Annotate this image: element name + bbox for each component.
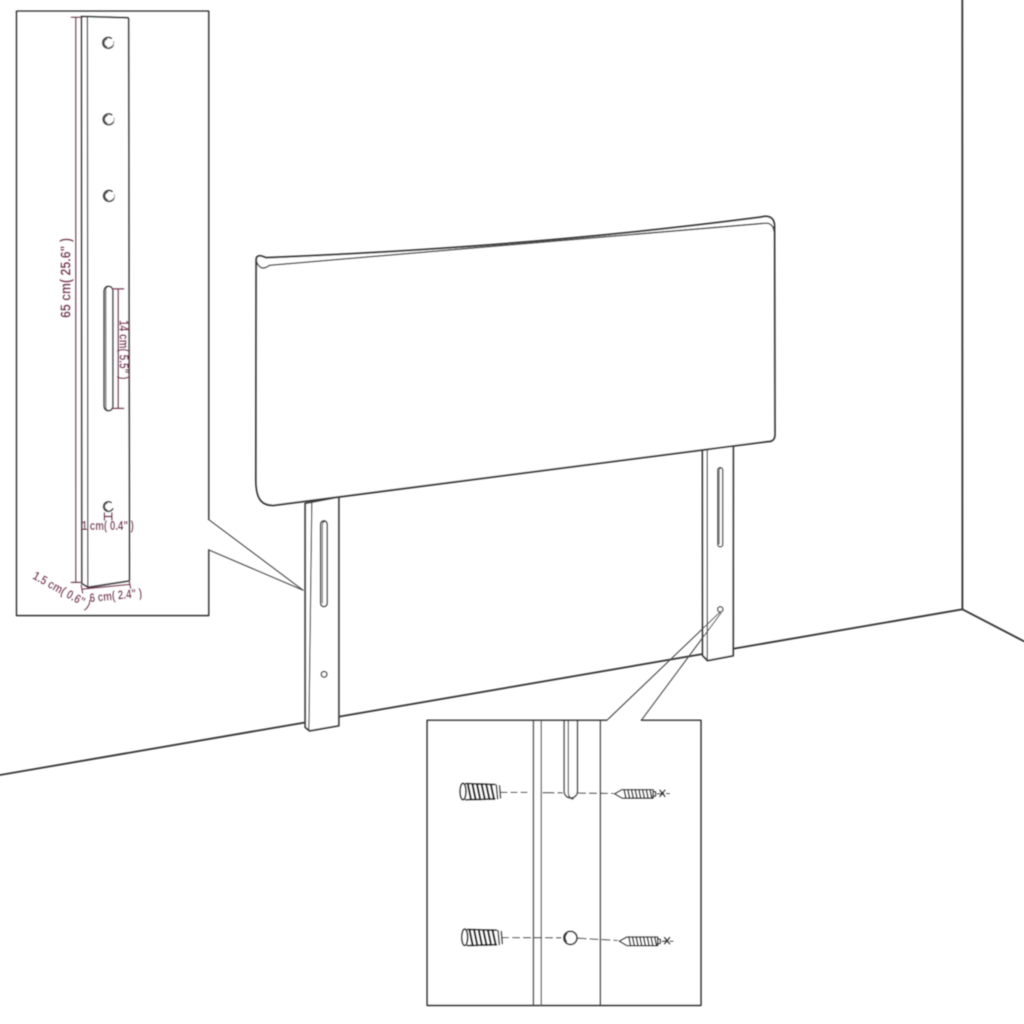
svg-text:65 cm( 25.6" ): 65 cm( 25.6" ) [58, 238, 74, 318]
svg-text:1 cm( 0.4" ): 1 cm( 0.4" ) [82, 520, 134, 533]
svg-text:14 cm( 5.5" ): 14 cm( 5.5" ) [116, 320, 131, 380]
